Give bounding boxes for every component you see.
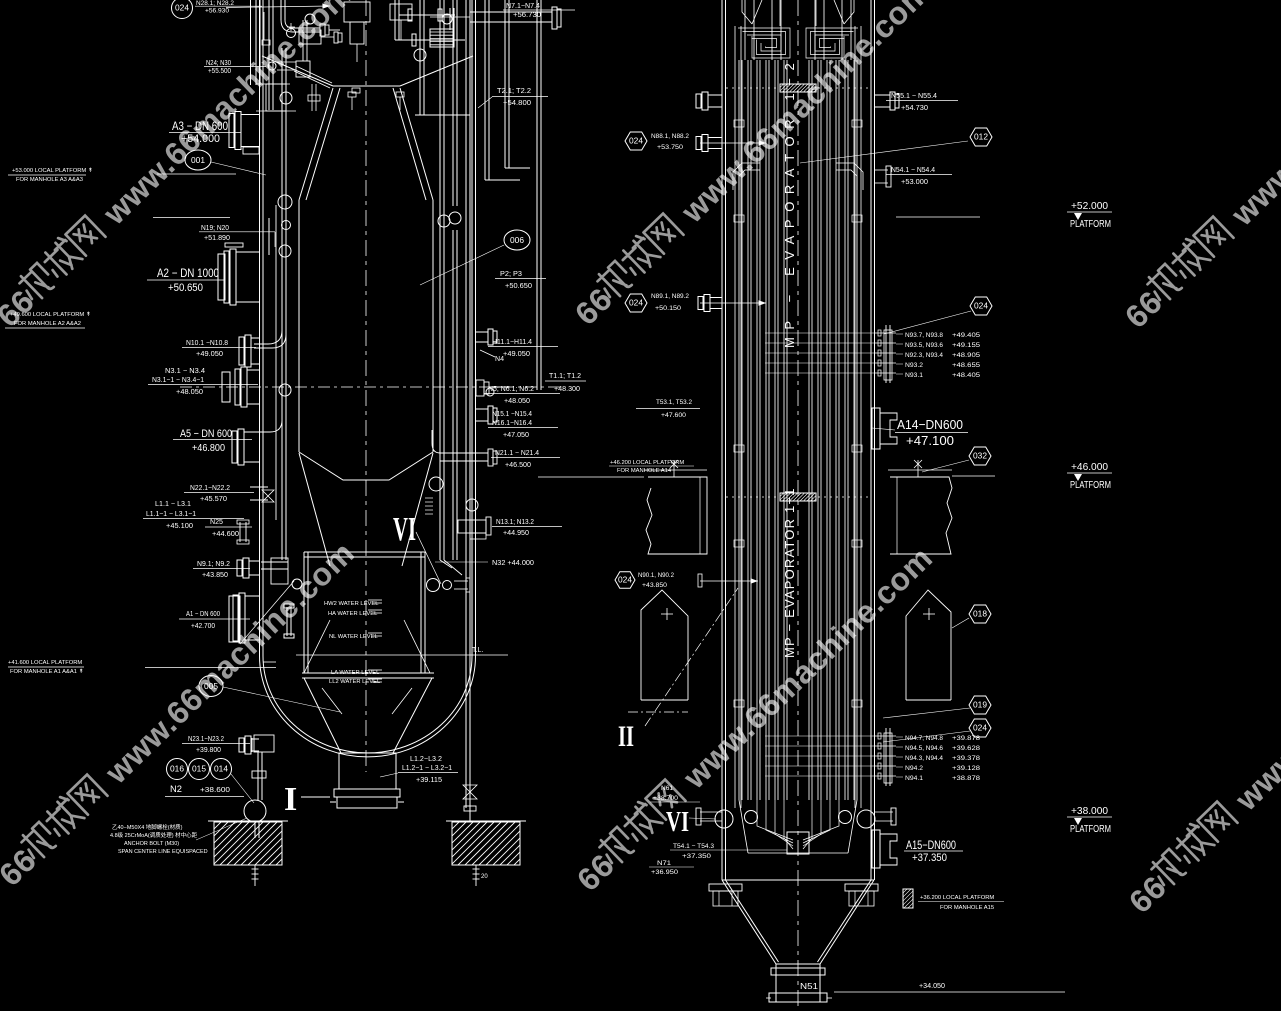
svg-text:N92.3, N93.4: N92.3, N93.4 <box>905 352 943 359</box>
svg-text:+47.600: +47.600 <box>661 412 686 419</box>
svg-text:+49.050: +49.050 <box>196 351 223 358</box>
svg-text:+49.050: +49.050 <box>503 351 530 358</box>
svg-text:N93.7, N93.8: N93.7, N93.8 <box>905 332 943 339</box>
svg-text:024: 024 <box>618 576 633 585</box>
svg-text:HA WATER LEVEL: HA WATER LEVEL <box>328 611 378 617</box>
svg-text:II: II <box>618 720 634 753</box>
svg-text:L1.1−1 − L3.1−1: L1.1−1 − L3.1−1 <box>146 511 196 518</box>
svg-text:+50.650: +50.650 <box>505 283 532 290</box>
svg-text:N71: N71 <box>657 860 671 867</box>
svg-text:+50.650: +50.650 <box>168 282 203 294</box>
svg-text:024: 024 <box>629 137 644 146</box>
svg-text:+43.850: +43.850 <box>202 572 228 579</box>
svg-text:N16.1−N16.4: N16.1−N16.4 <box>492 420 532 427</box>
svg-text:I: I <box>284 781 297 818</box>
svg-text:+38.878: +38.878 <box>952 775 980 782</box>
svg-text:N94.5, N94.6: N94.5, N94.6 <box>905 745 943 752</box>
svg-text:N93.2: N93.2 <box>905 362 923 369</box>
svg-text:A5 − DN 600: A5 − DN 600 <box>180 428 232 440</box>
svg-text:+48.050: +48.050 <box>504 398 530 405</box>
svg-text:N94.7, N94.8: N94.7, N94.8 <box>905 735 943 742</box>
svg-text:+48.405: +48.405 <box>952 372 980 379</box>
svg-text:+51.890: +51.890 <box>204 235 230 242</box>
svg-text:N10.1 −N10.8: N10.1 −N10.8 <box>186 340 228 347</box>
svg-text:+39.378: +39.378 <box>952 755 980 762</box>
svg-text:+34.050: +34.050 <box>919 983 945 990</box>
svg-text:A3 − DN 600: A3 − DN 600 <box>172 119 228 133</box>
svg-text:+37.350: +37.350 <box>912 852 947 864</box>
svg-text:L1.2−1 − L3.2−1: L1.2−1 − L3.2−1 <box>402 765 452 772</box>
svg-text:N94.2: N94.2 <box>905 765 923 772</box>
svg-text:005: 005 <box>204 682 219 691</box>
svg-text:+39.128: +39.128 <box>952 765 980 772</box>
svg-text:+48.050: +48.050 <box>176 389 203 396</box>
svg-text:032: 032 <box>973 452 988 461</box>
svg-text:T1.1; T1.2: T1.1; T1.2 <box>549 373 581 380</box>
svg-text:019: 019 <box>973 701 988 710</box>
svg-text:+39.878: +39.878 <box>952 735 980 742</box>
svg-text:+39.115: +39.115 <box>416 777 442 784</box>
svg-text:+43.850: +43.850 <box>642 582 667 589</box>
svg-text:L1.2−L3.2: L1.2−L3.2 <box>410 756 442 763</box>
svg-text:001: 001 <box>191 156 206 165</box>
svg-text:+53.000 LOCAL PLATFORM ↟: +53.000 LOCAL PLATFORM ↟ <box>12 167 93 174</box>
svg-text:L1.1 − L3.1: L1.1 − L3.1 <box>155 501 191 508</box>
svg-text:FOR MANHOLE A15: FOR MANHOLE A15 <box>940 905 994 911</box>
svg-text:N25: N25 <box>210 519 223 526</box>
svg-text:015: 015 <box>192 765 207 774</box>
svg-text:+54.000: +54.000 <box>181 133 220 145</box>
svg-text:LL2 WATER LEVEL: LL2 WATER LEVEL <box>329 679 381 685</box>
svg-text:N9.1; N9.2: N9.1; N9.2 <box>197 561 230 568</box>
svg-text:+38.000: +38.000 <box>1071 805 1108 817</box>
svg-text:+56.930: +56.930 <box>205 8 229 15</box>
svg-text:FOR MANHOLE A1 A&A1 ↟: FOR MANHOLE A1 A&A1 ↟ <box>10 668 83 675</box>
svg-text:N89.1, N89.2: N89.1, N89.2 <box>651 293 689 300</box>
svg-text:A2 − DN 1000: A2 − DN 1000 <box>157 266 219 280</box>
svg-text:024: 024 <box>629 299 644 308</box>
svg-text:A14−DN600: A14−DN600 <box>897 417 963 432</box>
svg-text:+54.800: +54.800 <box>503 100 531 107</box>
svg-text:+39.800: +39.800 <box>196 747 221 754</box>
svg-text:+53.750: +53.750 <box>657 144 683 151</box>
svg-text:LA WATER LEVEL: LA WATER LEVEL <box>331 670 380 676</box>
svg-text:FOR MANHOLE A14: FOR MANHOLE A14 <box>617 468 672 474</box>
svg-text:N22.1−N22.2: N22.1−N22.2 <box>190 485 230 492</box>
svg-text:+38.600: +38.600 <box>200 785 230 794</box>
svg-text:N19; N20: N19; N20 <box>201 225 229 232</box>
svg-text:T53.1, T53.2: T53.1, T53.2 <box>656 399 692 406</box>
svg-text:N2: N2 <box>170 784 182 794</box>
svg-text:+45.570: +45.570 <box>200 496 227 503</box>
svg-text:+48.300: +48.300 <box>554 386 580 393</box>
svg-text:4.8级 25CrMoA(调质处理) 材中心距: 4.8级 25CrMoA(调质处理) 材中心距 <box>110 831 198 839</box>
svg-text:+37.350: +37.350 <box>682 853 711 860</box>
svg-text:T.L.: T.L. <box>472 647 483 654</box>
svg-text:N90.1, N90.2: N90.1, N90.2 <box>638 572 674 579</box>
svg-text:N94.1: N94.1 <box>905 775 923 782</box>
svg-text:018: 018 <box>973 610 988 619</box>
svg-text:VI: VI <box>393 511 416 548</box>
svg-text:006: 006 <box>510 236 525 245</box>
svg-text:H11.1−H11.4: H11.1−H11.4 <box>492 339 532 346</box>
svg-text:PLATFORM: PLATFORM <box>1070 218 1111 230</box>
svg-text:20: 20 <box>481 874 488 880</box>
svg-text:MP − EVAPORATOR 1−1: MP − EVAPORATOR 1−1 <box>782 487 797 658</box>
svg-text:ANCHOR BOLT (M30): ANCHOR BOLT (M30) <box>124 841 179 847</box>
svg-text:N55.1 − N55.4: N55.1 − N55.4 <box>891 93 937 100</box>
svg-text:+36.950: +36.950 <box>651 869 678 876</box>
svg-text:N3.1−1 − N3.4−1: N3.1−1 − N3.4−1 <box>152 377 204 384</box>
svg-text:VI: VI <box>666 807 689 838</box>
svg-text:+45.100: +45.100 <box>166 523 193 530</box>
svg-text:N21.1 − N21.4: N21.1 − N21.4 <box>495 450 539 457</box>
svg-text:PLATFORM: PLATFORM <box>1070 479 1111 491</box>
svg-text:+55.500: +55.500 <box>208 68 231 75</box>
svg-text:014: 014 <box>214 765 229 774</box>
svg-text:+46.000: +46.000 <box>1071 461 1108 473</box>
svg-text:N15.1 −N15.4: N15.1 −N15.4 <box>492 411 532 418</box>
svg-text:N61: N61 <box>661 785 673 792</box>
svg-text:+44.950: +44.950 <box>503 530 529 537</box>
svg-text:PLATFORM: PLATFORM <box>1070 823 1111 835</box>
svg-text:N94.3, N94.4: N94.3, N94.4 <box>905 755 943 762</box>
svg-text:+49.600 LOCAL PLATFORM ↟: +49.600 LOCAL PLATFORM ↟ <box>10 311 91 318</box>
svg-text:+44.600: +44.600 <box>212 531 239 538</box>
svg-text:N54.1 − N54.4: N54.1 − N54.4 <box>891 167 935 174</box>
svg-text:P2; P3: P2; P3 <box>500 271 522 278</box>
svg-text:T2.1; T2.2: T2.1; T2.2 <box>497 88 531 95</box>
svg-text:HW2 WATER LEVEL: HW2 WATER LEVEL <box>324 601 379 607</box>
svg-text:N24; N30: N24; N30 <box>206 60 231 67</box>
svg-text:N4: N4 <box>495 356 504 363</box>
svg-text:N93.5, N93.6: N93.5, N93.6 <box>905 342 943 349</box>
svg-text:+52.000: +52.000 <box>1071 200 1108 212</box>
svg-text:+46.200 LOCAL PLATFORM: +46.200 LOCAL PLATFORM <box>610 460 684 466</box>
svg-text:N51: N51 <box>800 982 819 991</box>
svg-text:+54.730: +54.730 <box>901 105 928 112</box>
svg-text:+53.000: +53.000 <box>901 179 928 186</box>
svg-text:+46.500: +46.500 <box>505 462 531 469</box>
svg-text:+46.800: +46.800 <box>192 443 225 454</box>
svg-text:+49.155: +49.155 <box>952 342 980 349</box>
svg-text:T54.1 − T54.3: T54.1 − T54.3 <box>673 843 714 850</box>
svg-text:N32 +44.000: N32 +44.000 <box>492 560 534 567</box>
svg-text:NL WATER LEVEL: NL WATER LEVEL <box>329 634 379 640</box>
svg-text:N3.1 − N3.4: N3.1 − N3.4 <box>165 368 205 375</box>
svg-text:乙40−M50X4 地脚螺栓(材质): 乙40−M50X4 地脚螺栓(材质) <box>112 823 183 831</box>
svg-text:N88.1, N88.2: N88.1, N88.2 <box>651 133 689 140</box>
svg-text:+47.050: +47.050 <box>503 432 529 439</box>
svg-text:+39.628: +39.628 <box>952 745 980 752</box>
svg-text:012: 012 <box>974 133 989 142</box>
svg-text:+38.700: +38.700 <box>653 795 678 802</box>
svg-text:+49.405: +49.405 <box>952 332 980 339</box>
svg-text:+42.700: +42.700 <box>191 623 215 630</box>
svg-text:FOR MANHOLE A2 A&A2: FOR MANHOLE A2 A&A2 <box>14 321 81 327</box>
svg-text:+50.150: +50.150 <box>655 305 681 312</box>
svg-text:N13.1; N13.2: N13.1; N13.2 <box>496 519 534 526</box>
svg-text:016: 016 <box>170 765 185 774</box>
svg-text:N93.1: N93.1 <box>905 372 923 379</box>
svg-text:+47.100: +47.100 <box>906 433 954 448</box>
svg-text:+48.905: +48.905 <box>952 352 980 359</box>
svg-text:A15−DN600: A15−DN600 <box>906 838 956 852</box>
svg-text:024: 024 <box>974 302 989 311</box>
svg-text:+36.200 LOCAL PLATFORM: +36.200 LOCAL PLATFORM <box>920 895 994 901</box>
svg-text:N7.1−N7.4: N7.1−N7.4 <box>506 3 540 10</box>
svg-text:+56.730: +56.730 <box>513 12 541 19</box>
svg-text:FOR MANHOLE A3 A&A3: FOR MANHOLE A3 A&A3 <box>16 177 83 183</box>
svg-text:024: 024 <box>973 724 988 733</box>
svg-text:SPAN CENTER LINE EQUISPACED: SPAN CENTER LINE EQUISPACED <box>118 849 208 855</box>
svg-text:024: 024 <box>175 4 190 13</box>
svg-text:+48.655: +48.655 <box>952 362 980 369</box>
svg-text:N23.1−N23.2: N23.1−N23.2 <box>188 736 224 743</box>
svg-text:+41.600 LOCAL PLATFORM: +41.600 LOCAL PLATFORM <box>8 660 82 666</box>
svg-text:A1 − DN 600: A1 − DN 600 <box>186 611 220 618</box>
svg-text:MP − EVAPORATOR 1−2: MP − EVAPORATOR 1−2 <box>782 56 797 348</box>
svg-text:N5; N6.1; N6.2: N5; N6.1; N6.2 <box>488 386 534 393</box>
